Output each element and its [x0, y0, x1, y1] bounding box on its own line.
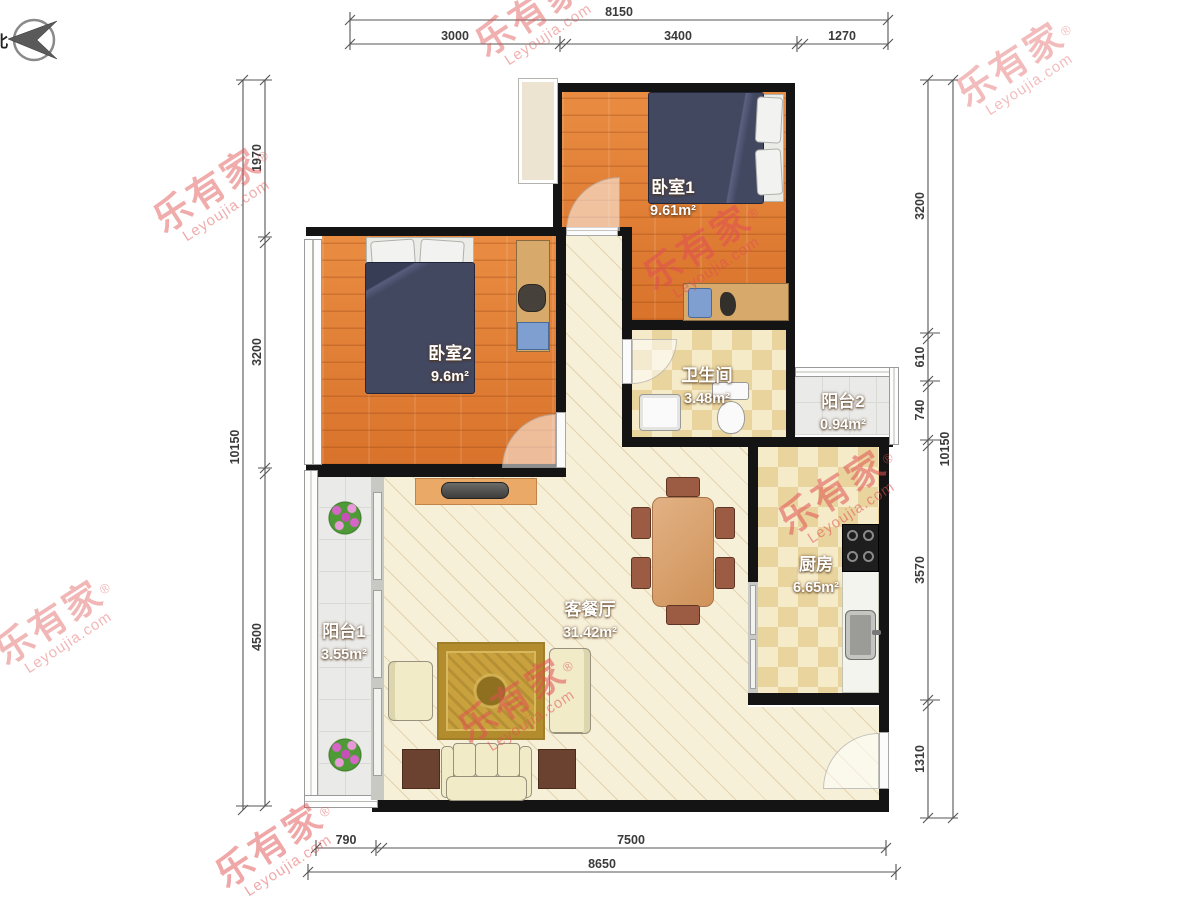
dim-top-seg: 3400	[664, 29, 692, 43]
room-name: 阳台1	[321, 620, 367, 645]
label-bedroom2: 卧室2 9.6m²	[428, 342, 471, 388]
dim-top-seg: 3000	[441, 29, 469, 43]
dimension-lines: 8150 3000 3400 1270 790 7500 8650 1970 3…	[0, 0, 1200, 900]
room-area: 3.55m²	[321, 645, 367, 666]
dim-left-total: 10150	[228, 430, 242, 465]
label-kitchen: 厨房 6.65m²	[793, 553, 839, 599]
label-bathroom: 卫生间 3.48m²	[682, 364, 733, 410]
label-balcony2: 阳台2 0.94m²	[820, 390, 866, 436]
room-area: 6.65m²	[793, 578, 839, 599]
dim-bottom-seg: 790	[336, 833, 357, 847]
room-name: 厨房	[793, 553, 839, 578]
label-balcony1: 阳台1 3.55m²	[321, 620, 367, 666]
dim-right-seg: 3200	[913, 192, 927, 220]
floorplan-canvas: 卧室1 9.61m² 卧室2 9.6m² 卫生间 3.48m² 阳台2 0.94…	[0, 0, 1200, 900]
room-name: 卧室2	[428, 342, 471, 367]
room-area: 0.94m²	[820, 415, 866, 436]
room-name: 卫生间	[682, 364, 733, 389]
room-area: 3.48m²	[682, 389, 733, 410]
dim-right-seg: 3570	[913, 556, 927, 584]
dim-right-seg: 1310	[913, 745, 927, 773]
dim-bottom-total: 8650	[588, 857, 616, 871]
room-area: 9.61m²	[650, 201, 696, 222]
dim-top-total: 8150	[605, 5, 633, 19]
dim-right-total: 10150	[938, 432, 952, 467]
room-area: 31.42m²	[563, 623, 617, 644]
dim-left-seg: 1970	[250, 144, 264, 172]
label-living: 客餐厅 31.42m²	[563, 598, 617, 644]
room-area: 9.6m²	[428, 367, 471, 388]
dim-right-seg: 610	[913, 347, 927, 368]
room-name: 客餐厅	[563, 598, 617, 623]
dim-left-seg: 3200	[250, 338, 264, 366]
room-name: 卧室1	[650, 176, 696, 201]
dim-left-seg: 4500	[250, 623, 264, 651]
label-bedroom1: 卧室1 9.61m²	[650, 176, 696, 222]
dim-top-seg: 1270	[828, 29, 856, 43]
room-name: 阳台2	[820, 390, 866, 415]
dim-right-seg: 740	[913, 400, 927, 421]
dim-bottom-seg: 7500	[617, 833, 645, 847]
